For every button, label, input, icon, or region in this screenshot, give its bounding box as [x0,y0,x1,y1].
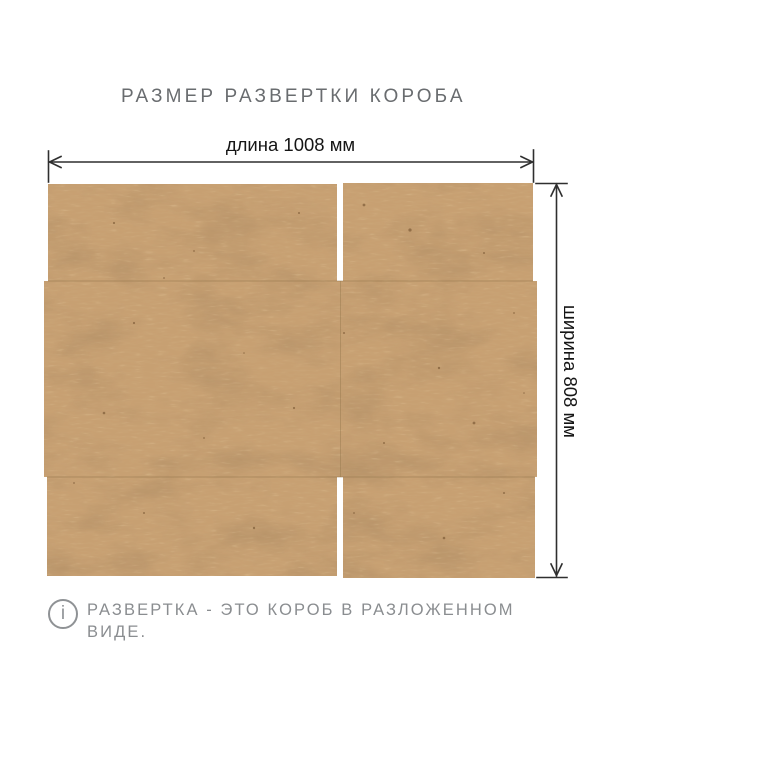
width-arrowhead-bottom [551,564,562,576]
length-arrowhead-right [521,157,533,168]
width-dimension-label: ширина 808 мм [559,305,581,438]
info-note-text: РАЗВЕРТКА - ЭТО КОРОБ В РАЗЛОЖЕННОМ ВИДЕ… [87,600,565,643]
box-development-figure [44,183,537,579]
panel-top-left-flap [48,184,337,281]
length-arrowhead-left [50,157,62,168]
page: РАЗМЕР РАЗВЕРТКИ КОРОБА длина 1008 мм ши… [0,0,764,759]
panel-bottom-right-flap [343,477,535,578]
width-arrowhead-top [551,185,562,197]
panel-bottom-left-flap [47,477,337,576]
panel-top-right-flap [343,183,533,281]
info-icon-glyph: i [61,603,65,624]
panel-middle [44,281,537,477]
info-note: i РАЗВЕРТКА - ЭТО КОРОБ В РАЗЛОЖЕННОМ ВИ… [48,598,565,643]
page-title: РАЗМЕР РАЗВЕРТКИ КОРОБА [121,86,466,108]
info-icon: i [48,599,78,629]
length-dimension-label: длина 1008 мм [48,134,533,156]
